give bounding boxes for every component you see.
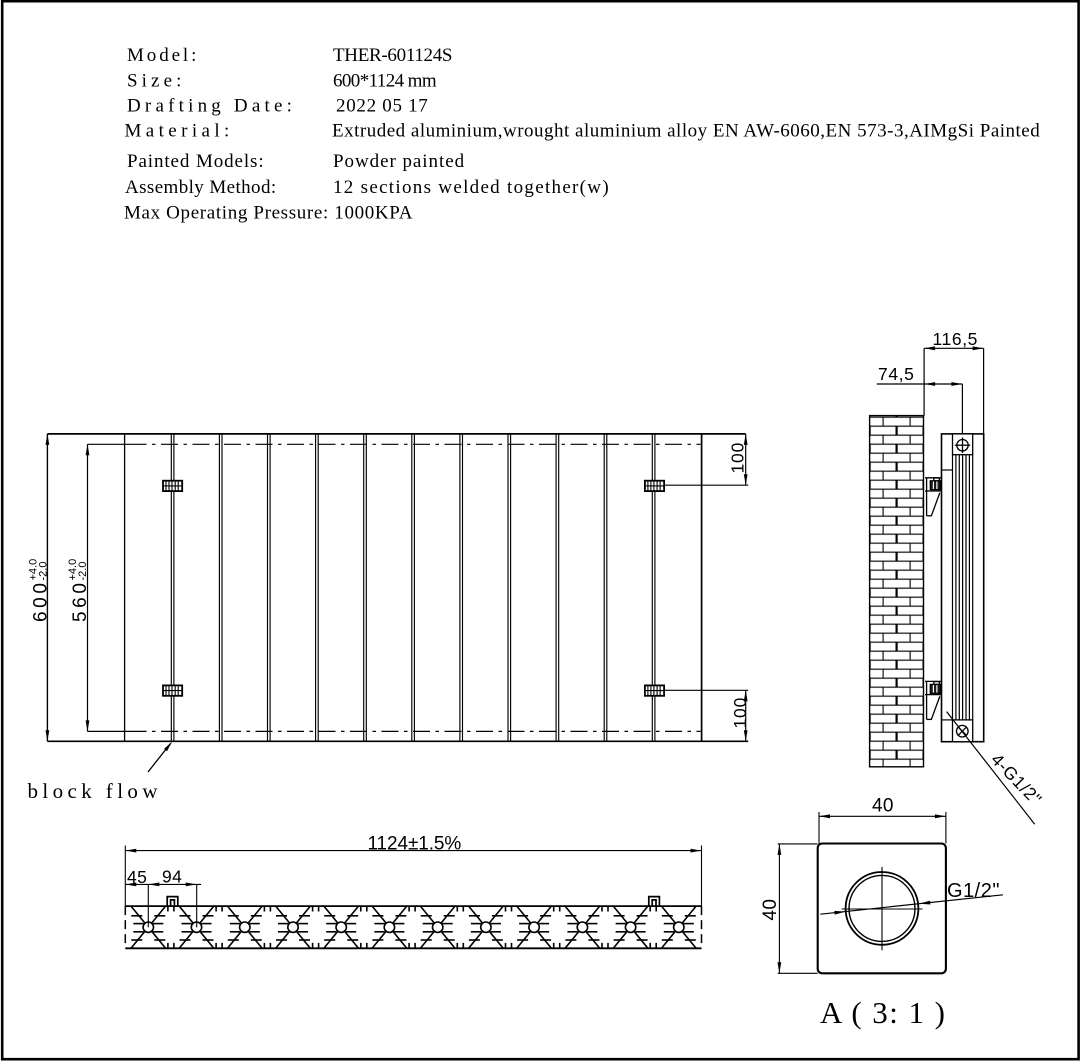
svg-text:Model:: Model: bbox=[127, 45, 199, 66]
svg-text:74,5: 74,5 bbox=[878, 364, 914, 384]
svg-text:100: 100 bbox=[728, 442, 748, 474]
svg-text:-2.0: -2.0 bbox=[77, 562, 89, 581]
svg-text:45: 45 bbox=[127, 867, 147, 887]
svg-text:600*1124 mm: 600*1124 mm bbox=[333, 71, 437, 92]
svg-text:100: 100 bbox=[730, 697, 750, 729]
svg-text:G1/2": G1/2" bbox=[947, 880, 1000, 902]
svg-text:THER-601124S: THER-601124S bbox=[333, 45, 452, 66]
svg-text:2022 05 17: 2022 05 17 bbox=[336, 96, 429, 117]
svg-text:Material:: Material: bbox=[125, 121, 234, 142]
svg-text:560: 560 bbox=[70, 579, 91, 622]
svg-text:Max Operating Pressure: 1000KP: Max Operating Pressure: 1000KPA bbox=[124, 203, 413, 224]
svg-text:A ( 3: 1 ): A ( 3: 1 ) bbox=[820, 995, 946, 1030]
svg-text:Painted Models:: Painted Models: bbox=[127, 151, 265, 172]
svg-text:12 sections welded together(w): 12 sections welded together(w) bbox=[333, 177, 610, 198]
svg-text:40: 40 bbox=[872, 796, 894, 817]
svg-text:40: 40 bbox=[760, 899, 781, 921]
svg-text:Size:: Size: bbox=[127, 71, 186, 92]
svg-text:Drafting Date:: Drafting Date: bbox=[127, 96, 296, 117]
svg-text:block flow: block flow bbox=[28, 779, 162, 803]
svg-text:-2.0: -2.0 bbox=[37, 562, 49, 581]
svg-text:600: 600 bbox=[30, 579, 51, 622]
svg-text:Assembly Method:: Assembly Method: bbox=[125, 177, 277, 198]
svg-text:Extruded aluminium,wrought alu: Extruded aluminium,wrought aluminium all… bbox=[332, 121, 1040, 142]
svg-text:94: 94 bbox=[162, 867, 182, 887]
svg-text:Powder painted: Powder painted bbox=[333, 151, 465, 172]
svg-text:1124±1.5%: 1124±1.5% bbox=[368, 834, 462, 855]
svg-text:116,5: 116,5 bbox=[933, 329, 979, 349]
